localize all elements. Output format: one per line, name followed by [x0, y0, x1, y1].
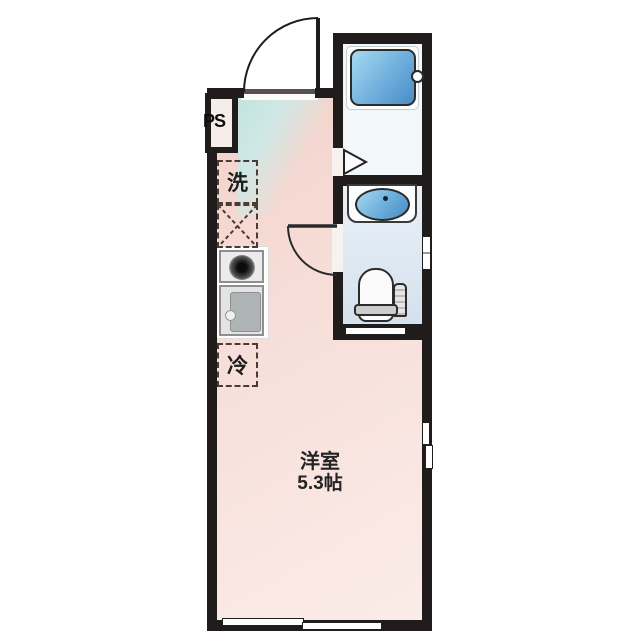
refrigerator-space: 冷 — [217, 343, 258, 387]
window-bottom-right-pane — [302, 622, 382, 630]
entrance-threshold — [241, 94, 318, 100]
window-right-lower-pane — [425, 445, 433, 469]
wall-door-stub — [315, 88, 334, 98]
washing-machine-space: 洗 — [217, 160, 258, 204]
window-right-upper-pane — [422, 422, 430, 445]
room-name: 洋室 — [260, 451, 380, 473]
bathroom-door-opening — [332, 148, 343, 176]
washer-label: 洗 — [227, 167, 248, 197]
kitchen-faucet-icon — [225, 310, 236, 321]
floor-plan: 洗 冷 洋室 5.3帖 PS — [0, 0, 641, 640]
wall-bathroom-top — [333, 33, 432, 44]
kitchen-sink — [219, 285, 264, 336]
kitchen-stove — [219, 250, 264, 283]
pipe-space-label: PS — [203, 111, 239, 132]
room-size: 5.3帖 — [260, 473, 380, 495]
basin-faucet-icon — [383, 196, 388, 201]
wc-door-opening — [332, 224, 343, 272]
fridge-label: 冷 — [227, 350, 248, 380]
toilet-seat — [354, 304, 398, 316]
wall-right — [422, 33, 432, 631]
entrance-door-arc — [244, 18, 318, 92]
stove-burner-icon — [229, 255, 255, 280]
window-wc — [422, 236, 431, 270]
wall-bathroom-left — [333, 43, 343, 340]
wall-left — [207, 88, 217, 631]
bathtub-faucet-icon — [411, 70, 424, 83]
window-bottom-left-pane — [222, 618, 304, 626]
crossed-space — [217, 204, 258, 248]
entrance-sill — [241, 89, 318, 94]
room-label: 洋室 5.3帖 — [260, 451, 380, 495]
wall-inset-bathroom-bottom — [345, 327, 406, 335]
bathtub — [350, 49, 416, 106]
wash-basin — [355, 188, 410, 221]
